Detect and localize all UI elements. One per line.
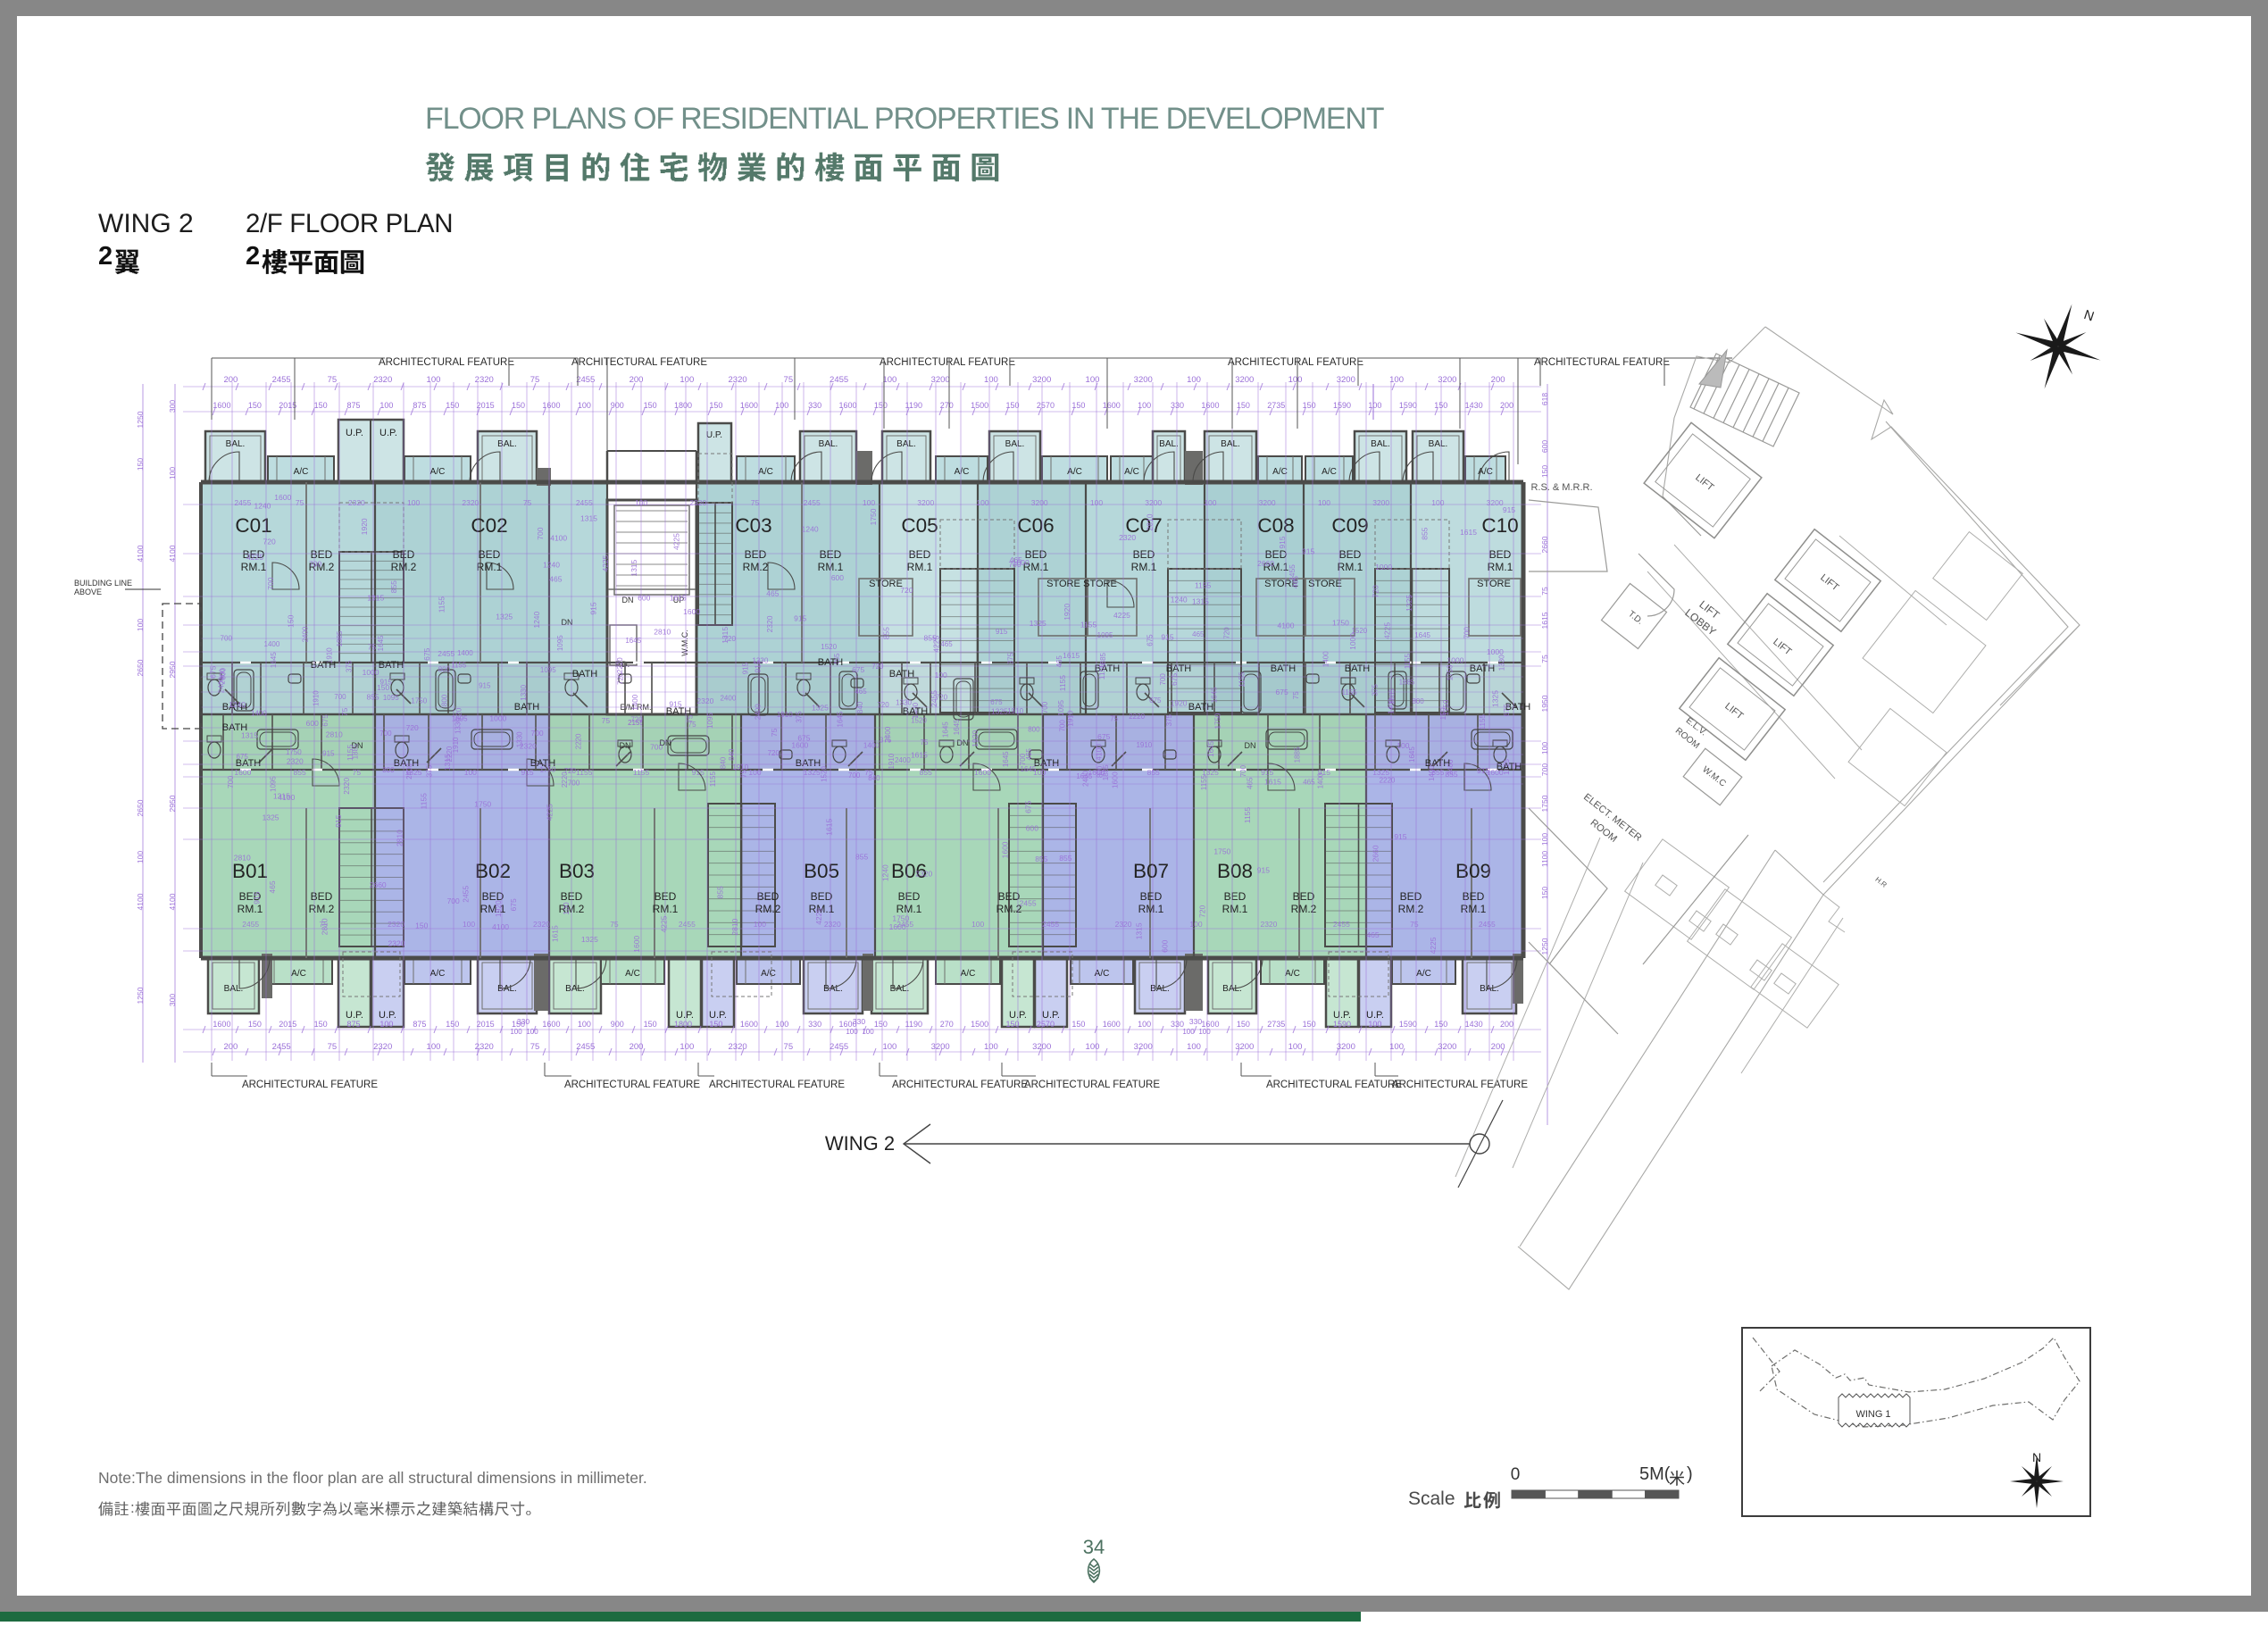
svg-text:1910: 1910 [1067,710,1075,726]
svg-text:C03: C03 [735,514,771,537]
svg-text:100: 100 [379,1020,393,1029]
svg-text:1155: 1155 [1058,675,1067,692]
svg-text:200: 200 [1500,1020,1513,1029]
svg-text:DN: DN [957,738,969,747]
svg-text:BAL.: BAL. [1005,439,1025,449]
svg-text:375: 375 [1165,713,1173,726]
svg-text:C08: C08 [1257,514,1294,537]
svg-text:BED: BED [1489,548,1512,561]
svg-text:1325: 1325 [1030,619,1046,628]
svg-text:1315: 1315 [443,754,452,771]
svg-text:3200: 3200 [931,1042,950,1052]
svg-text:915: 915 [1318,768,1330,777]
svg-text:150: 150 [709,1020,722,1029]
svg-text:1155: 1155 [1243,807,1252,824]
svg-text:1645: 1645 [377,635,385,651]
svg-text:675: 675 [1023,800,1032,813]
svg-text:4225: 4225 [601,555,610,571]
svg-text:900: 900 [611,401,624,410]
svg-text:720: 720 [768,749,780,757]
svg-text:675: 675 [990,698,1003,706]
svg-text:2810: 2810 [730,918,739,935]
svg-text:1325: 1325 [1372,768,1389,777]
svg-text:1000: 1000 [1447,656,1463,665]
svg-text:1615: 1615 [1540,612,1549,629]
svg-text:1330: 1330 [1497,655,1505,671]
svg-text:BAL.: BAL. [819,439,838,449]
svg-text:600: 600 [1160,939,1169,952]
svg-text:2455: 2455 [1288,564,1297,581]
svg-text:A/C: A/C [625,969,640,979]
svg-text:RM.1: RM.1 [1138,903,1164,915]
svg-text:BED: BED [1400,890,1422,903]
svg-text:3200: 3200 [1235,375,1254,385]
svg-text:200: 200 [1500,401,1513,410]
svg-text:ARCHITECTURAL FEATURE: ARCHITECTURAL FEATURE [709,1080,845,1090]
svg-text:300: 300 [168,994,177,1006]
svg-text:2455: 2455 [804,498,821,507]
svg-text:2015: 2015 [477,401,495,410]
svg-text:375: 375 [425,764,433,777]
svg-text:BED: BED [1133,548,1155,561]
svg-text:2455: 2455 [930,690,938,707]
svg-text:200: 200 [630,1042,644,1052]
svg-text:100: 100 [379,401,393,410]
svg-text:1750: 1750 [1214,713,1222,729]
svg-text:465: 465 [1246,777,1254,789]
svg-text:0: 0 [1511,1465,1521,1484]
svg-text:1155: 1155 [437,596,446,613]
svg-text:855: 855 [366,692,379,701]
svg-text:200: 200 [1491,1042,1505,1052]
svg-text:STORE: STORE [1477,579,1511,589]
svg-text:4225: 4225 [814,908,823,925]
svg-text:1920: 1920 [360,518,369,535]
svg-text:75: 75 [784,375,794,385]
svg-text:150: 150 [314,1020,328,1029]
svg-text:100: 100 [526,1028,538,1036]
svg-text:1400: 1400 [457,649,473,657]
svg-text:330: 330 [1171,401,1184,410]
svg-text:BED: BED [1224,890,1247,903]
svg-text:1315: 1315 [241,731,258,740]
svg-text:100: 100 [1389,375,1404,385]
svg-text:ARCHITECTURAL FEATURE: ARCHITECTURAL FEATURE [242,1080,378,1090]
svg-text:1600: 1600 [234,768,251,777]
svg-text:B05: B05 [804,860,839,882]
svg-text:A/C: A/C [955,467,970,477]
svg-text:700: 700 [1463,627,1471,639]
svg-text:465: 465 [1025,748,1033,761]
svg-text:N: N [2032,1450,2041,1464]
svg-text:1600: 1600 [974,768,991,777]
svg-text:1095: 1095 [706,713,714,729]
svg-text:1325: 1325 [991,706,1008,715]
svg-text:1750: 1750 [869,508,878,525]
svg-text:2810: 2810 [654,627,671,636]
svg-text:1750: 1750 [1540,795,1549,812]
svg-text:1600: 1600 [1103,1020,1121,1029]
svg-text:2455: 2455 [438,649,454,658]
svg-text:2455: 2455 [1479,920,1496,929]
svg-text:915: 915 [1278,536,1287,548]
svg-text:A/C: A/C [761,969,776,979]
svg-text:3200: 3200 [1031,498,1048,507]
svg-text:A/C: A/C [430,467,446,477]
svg-text:100: 100 [635,498,647,507]
svg-text:3200: 3200 [1032,375,1051,385]
svg-text:1800: 1800 [674,401,692,410]
svg-text:BED: BED [479,548,501,561]
svg-text:75: 75 [770,728,779,737]
svg-text:1155: 1155 [633,768,650,777]
svg-text:150: 150 [1434,1020,1447,1029]
svg-text:BUILDING LINE: BUILDING LINE [74,579,132,588]
svg-text:BATH: BATH [1470,663,1496,674]
svg-text:150: 150 [1438,707,1447,720]
svg-text:720: 720 [877,701,889,709]
svg-text:1590: 1590 [1333,401,1351,410]
svg-text:100: 100 [775,1020,788,1029]
svg-text:1315: 1315 [721,627,730,644]
svg-text:75: 75 [1540,655,1549,663]
svg-text:2320: 2320 [533,920,550,929]
svg-text:100: 100 [1540,833,1549,846]
svg-text:1155: 1155 [346,745,354,762]
svg-text:4225: 4225 [672,533,681,550]
svg-text:1920: 1920 [1171,699,1188,708]
svg-text:1400: 1400 [251,710,267,718]
svg-text:1645: 1645 [837,711,845,727]
svg-text:150: 150 [1540,887,1549,899]
svg-text:700: 700 [530,729,543,738]
svg-text:75: 75 [864,768,873,777]
svg-text:1615: 1615 [670,594,687,603]
svg-text:2570: 2570 [1037,1020,1055,1029]
svg-text:2660: 2660 [1371,845,1380,862]
svg-text:WING 2: WING 2 [825,1132,895,1155]
svg-text:BAL.: BAL. [226,439,246,449]
svg-text:200: 200 [1491,375,1505,385]
svg-text:915: 915 [692,768,705,777]
svg-text:4225: 4225 [545,804,554,821]
svg-text:700: 700 [309,559,321,568]
svg-text:RM.2: RM.2 [1398,903,1424,915]
svg-text:1325: 1325 [263,813,279,821]
svg-text:2660: 2660 [1540,536,1549,553]
svg-text:2400: 2400 [218,677,226,693]
svg-text:4225: 4225 [246,553,263,562]
svg-text:2320: 2320 [287,757,304,766]
svg-text:100: 100 [1318,498,1330,507]
svg-text:WING 2: WING 2 [98,209,194,238]
svg-text:100: 100 [680,375,694,385]
svg-text:B09: B09 [1455,860,1491,882]
svg-text:100: 100 [976,498,988,507]
svg-text:200: 200 [223,1042,238,1052]
svg-text:150: 150 [1237,401,1250,410]
svg-text:1315: 1315 [273,791,290,800]
svg-text:2320: 2320 [388,939,405,948]
svg-text:75: 75 [328,375,338,385]
svg-text:2015: 2015 [279,401,296,410]
svg-text:700: 700 [1540,763,1549,776]
svg-text:U.P.: U.P. [706,430,722,440]
svg-text:800: 800 [1412,697,1424,705]
svg-text:150: 150 [248,401,262,410]
svg-text:915: 915 [1394,832,1406,841]
svg-text:100: 100 [407,498,420,507]
svg-text:75: 75 [328,1042,338,1052]
svg-text:720: 720 [1198,905,1207,917]
svg-text:1950: 1950 [1540,695,1549,712]
svg-text:375: 375 [1006,652,1014,664]
svg-text:ARCHITECTURAL FEATURE: ARCHITECTURAL FEATURE [1534,357,1670,368]
svg-text:3200: 3200 [1337,375,1355,385]
svg-text:720: 720 [900,586,913,595]
svg-text:1750: 1750 [411,697,427,705]
svg-text:): ) [1687,1464,1693,1484]
svg-text:1325: 1325 [1202,768,1219,777]
svg-text:1240: 1240 [543,560,560,569]
svg-text:100: 100 [1204,498,1216,507]
svg-text:2320: 2320 [475,375,494,385]
svg-text:855: 855 [1147,768,1160,777]
svg-text:1500: 1500 [971,401,988,410]
svg-text:100: 100 [1198,1028,1211,1036]
svg-text:1325: 1325 [1405,595,1413,612]
svg-text:375: 375 [880,737,892,745]
svg-text:915: 915 [794,614,806,623]
svg-text:675: 675 [1276,688,1288,696]
svg-text:2320: 2320 [462,498,479,507]
svg-text:840: 840 [720,756,728,769]
svg-text:270: 270 [940,1020,954,1029]
svg-text:150: 150 [1071,401,1085,410]
svg-text:ARCHITECTURAL FEATURE: ARCHITECTURAL FEATURE [564,1080,700,1090]
svg-text:1920: 1920 [1063,604,1071,621]
svg-text:2/F FLOOR PLAN: 2/F FLOOR PLAN [246,209,453,238]
svg-text:1325: 1325 [581,935,598,944]
svg-text:A/C: A/C [1285,969,1300,979]
svg-text:100: 100 [971,920,984,929]
svg-text:855: 855 [920,768,932,777]
svg-text:STORE: STORE [1083,579,1117,589]
svg-text:330: 330 [1171,1020,1184,1029]
svg-text:465: 465 [549,574,562,583]
svg-text:1600: 1600 [1111,771,1120,788]
svg-text:675: 675 [422,647,431,660]
svg-text:100: 100 [1540,742,1549,755]
svg-text:100: 100 [984,375,998,385]
svg-text:1750: 1750 [286,748,302,756]
svg-text:1250: 1250 [1540,938,1549,955]
svg-text:2455: 2455 [576,375,595,385]
svg-text:1190: 1190 [905,1020,922,1029]
svg-text:RM.1: RM.1 [1461,903,1487,915]
svg-text:C06: C06 [1017,514,1054,537]
svg-text:1430: 1430 [1465,401,1483,410]
svg-text:ARCHITECTURAL FEATURE: ARCHITECTURAL FEATURE [880,357,1015,368]
svg-text:150: 150 [377,683,389,692]
svg-text:618: 618 [1540,393,1549,405]
svg-text:855: 855 [294,768,306,777]
svg-text:855: 855 [389,580,398,593]
svg-text:1600: 1600 [213,401,230,410]
svg-text:1315: 1315 [580,514,597,523]
svg-text:150: 150 [136,458,145,471]
svg-text:150: 150 [248,1020,262,1029]
svg-text:100: 100 [578,1020,591,1029]
svg-text:Note:The dimensions in the flo: Note:The dimensions in the floor plan ar… [98,1469,647,1487]
svg-text:2320: 2320 [388,920,404,929]
svg-text:BAL.: BAL. [1371,439,1390,449]
svg-text:2455: 2455 [1333,920,1350,929]
svg-text:700: 700 [379,730,392,738]
svg-text:2455: 2455 [461,886,470,903]
svg-text:BAL.: BAL. [565,984,585,994]
svg-text:2810: 2810 [326,730,343,739]
svg-text:375: 375 [1372,684,1380,696]
svg-text:1520: 1520 [911,716,927,724]
svg-text:1750: 1750 [1213,846,1230,855]
svg-text:3200: 3200 [917,498,934,507]
svg-text:675: 675 [797,733,810,742]
svg-text:1590: 1590 [1399,1020,1417,1029]
svg-text:R.S. & M.R.R.: R.S. & M.R.R. [1530,482,1592,493]
svg-text:BATH: BATH [1188,702,1214,713]
svg-text:75: 75 [1540,587,1549,596]
svg-text:1600: 1600 [1201,1020,1219,1029]
svg-text:4100: 4100 [136,893,145,910]
svg-text:BATH: BATH [889,669,915,680]
svg-text:465: 465 [1010,555,1022,564]
svg-text:720: 720 [406,723,419,732]
svg-text:1000: 1000 [489,713,506,722]
svg-text:BATH: BATH [530,758,556,769]
svg-text:200: 200 [223,375,238,385]
svg-text:1600: 1600 [632,936,641,953]
svg-text:1400: 1400 [863,742,880,750]
svg-text:75: 75 [602,716,611,725]
svg-text:875: 875 [413,1020,426,1029]
svg-text:BED: BED [311,890,333,903]
svg-text:100: 100 [882,1042,896,1052]
svg-text:720: 720 [617,672,625,685]
svg-text:2320: 2320 [1260,920,1277,929]
svg-text:1800: 1800 [674,1020,692,1029]
svg-text:100: 100 [427,1042,441,1052]
svg-text:100: 100 [1086,1042,1100,1052]
svg-text:100: 100 [1397,741,1409,750]
svg-text:600: 600 [831,573,844,582]
svg-text:700: 700 [568,780,580,788]
svg-text:2660: 2660 [1257,559,1274,568]
svg-text:100: 100 [1288,1042,1303,1052]
svg-text:150: 150 [415,921,428,930]
svg-text:3200: 3200 [1235,1042,1254,1052]
svg-text:75: 75 [368,642,377,651]
svg-text:3200: 3200 [1145,498,1162,507]
svg-text:BED: BED [998,890,1021,903]
svg-text:100: 100 [1187,375,1201,385]
svg-text:150: 150 [1006,401,1020,410]
svg-text:270: 270 [940,401,954,410]
svg-text:1400: 1400 [1322,651,1330,667]
svg-text:B02: B02 [475,860,511,882]
svg-text:100: 100 [1138,1020,1151,1029]
svg-text:STORE: STORE [1308,579,1342,589]
svg-text:2400: 2400 [720,694,736,702]
svg-text:465: 465 [1366,930,1379,939]
svg-text:1315: 1315 [1134,922,1143,939]
svg-text:2455: 2455 [242,920,259,929]
svg-text:BATH: BATH [903,706,929,717]
svg-text:100: 100 [427,375,441,385]
svg-text:1000: 1000 [1487,647,1504,656]
svg-text:100: 100 [136,851,145,863]
svg-text:1600: 1600 [839,401,857,410]
svg-text:915: 915 [252,891,261,904]
svg-text:1600: 1600 [1487,768,1504,777]
svg-text:915: 915 [322,750,335,758]
svg-text:BAL.: BAL. [497,439,517,449]
svg-text:A/C: A/C [430,969,446,979]
svg-text:1000: 1000 [1375,563,1392,571]
svg-text:1600: 1600 [1000,841,1009,858]
svg-text:75: 75 [1410,920,1419,929]
svg-text:100: 100 [1033,768,1046,777]
svg-text:2735: 2735 [1267,1020,1285,1029]
svg-text:1315: 1315 [367,594,384,603]
svg-text:ARCHITECTURAL FEATURE: ARCHITECTURAL FEATURE [1024,1080,1160,1090]
svg-text:2015: 2015 [477,1020,495,1029]
svg-text:STORE: STORE [1046,579,1080,589]
svg-text:75: 75 [340,707,349,716]
svg-text:915: 915 [1257,865,1270,874]
svg-text:855: 855 [1035,855,1047,863]
svg-text:100: 100 [748,768,761,777]
svg-text:2650: 2650 [136,799,145,816]
svg-text:2320: 2320 [729,1042,747,1052]
svg-text:720: 720 [454,707,463,720]
svg-text:675: 675 [852,665,864,674]
svg-text:1155: 1155 [576,768,593,777]
svg-text:2455: 2455 [896,920,913,929]
svg-text:150: 150 [314,401,328,410]
svg-text:1325: 1325 [812,704,829,713]
svg-text:875: 875 [347,1020,361,1029]
svg-text:100: 100 [754,920,766,929]
svg-text:150: 150 [446,401,459,410]
svg-text:A/C: A/C [961,969,976,979]
svg-text:2320: 2320 [520,741,537,750]
svg-text:4100: 4100 [550,533,567,542]
svg-text:ARCHITECTURAL FEATURE: ARCHITECTURAL FEATURE [1266,1080,1402,1090]
svg-text:1400: 1400 [631,694,639,710]
svg-text:2455: 2455 [1020,899,1037,908]
svg-text:2320: 2320 [689,498,706,507]
svg-text:1190: 1190 [905,401,922,410]
svg-text:2220: 2220 [1129,713,1145,721]
svg-text:BED: BED [909,548,931,561]
svg-text:2735: 2735 [1267,401,1285,410]
svg-text:855: 855 [1421,527,1430,539]
svg-text:4225: 4225 [660,915,669,932]
svg-text:720: 720 [263,537,276,546]
svg-text:75: 75 [610,920,619,929]
svg-text:1250: 1250 [136,411,145,428]
